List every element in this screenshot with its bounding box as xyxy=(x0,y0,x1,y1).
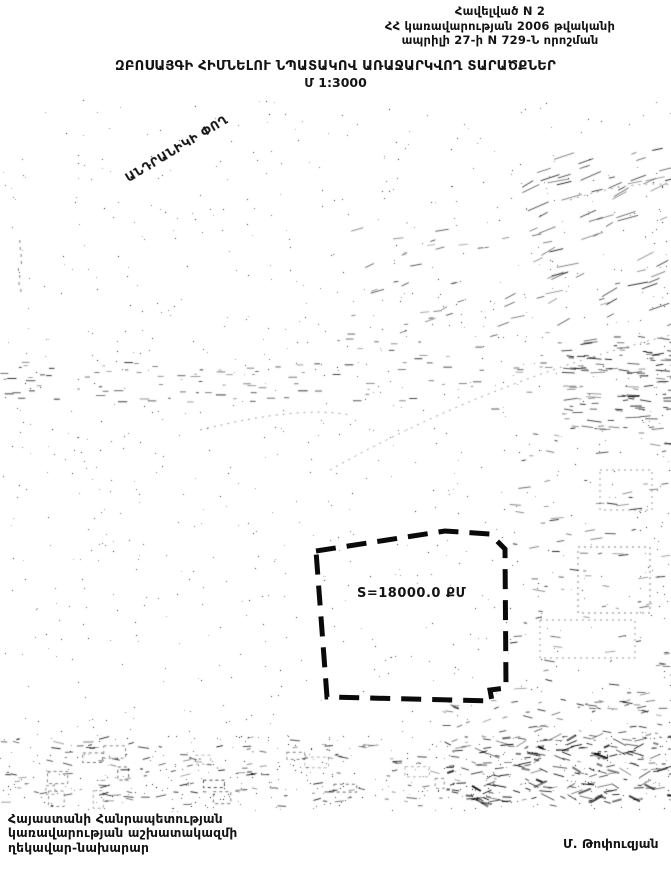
decision-date-number: ապրիլի 27-ի N 729-Ն որոշման xyxy=(330,33,670,48)
annex-header: Հավելված N 2 ՀՀ կառավարության 2006 թվակա… xyxy=(330,4,670,48)
map-scale: Մ 1:3000 xyxy=(0,75,671,90)
map-sheet: Հավելված N 2 ՀՀ կառավարության 2006 թվակա… xyxy=(0,0,671,869)
signatory-name: Մ. Թոփուզյան xyxy=(563,836,659,851)
authority-line-2: կառավարության աշխատակազմի xyxy=(8,826,237,840)
authority-line-1: Հայաստանի Հանրապետության xyxy=(8,812,237,826)
issuing-authority-block: Հայաստանի Հանրապետության կառավարության ա… xyxy=(8,812,237,855)
authority-line-3: ղեկավար-նախարար xyxy=(8,841,237,855)
sheet-title: ԶԲՈՍԱՅԳԻ ՀԻՄՆԵԼՈՒ ՆՊԱՏԱԿՈՎ ԱՌԱՋԱՐԿՎՈՂ ՏԱ… xyxy=(0,59,671,74)
government-decision-line: ՀՀ կառավարության 2006 թվականի xyxy=(330,19,670,34)
annex-number: Հավելված N 2 xyxy=(330,4,670,19)
topographic-noise-layer xyxy=(0,0,671,869)
